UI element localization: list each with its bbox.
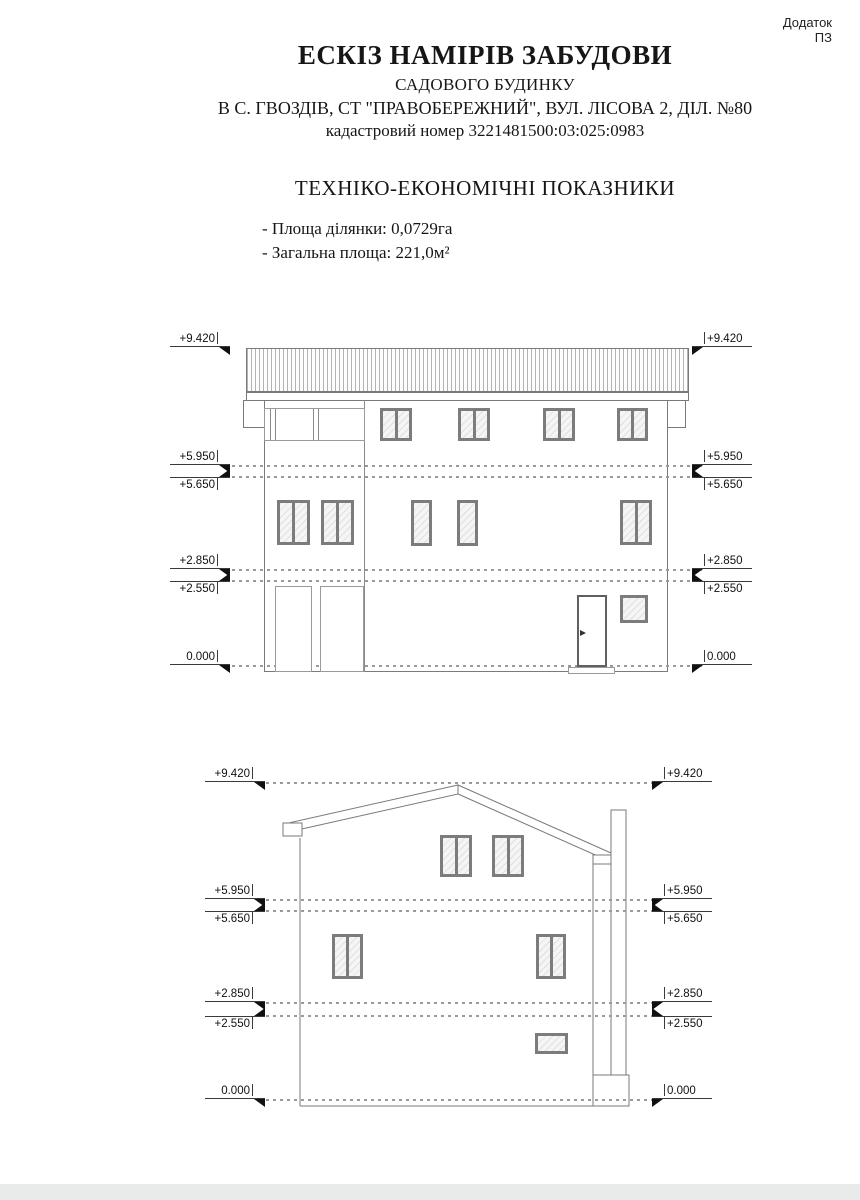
level-mark-icon — [254, 903, 265, 911]
eave-return-right — [667, 400, 686, 428]
level-value: +5.950 — [652, 884, 712, 899]
window — [457, 500, 478, 546]
level-label: +5.950 — [652, 884, 712, 899]
window — [411, 500, 432, 546]
level-line — [266, 910, 660, 912]
roof-hatched-band — [246, 348, 689, 392]
level-mark-icon — [692, 665, 703, 673]
window — [543, 408, 575, 441]
level-value: +5.650 — [170, 477, 230, 492]
level-line — [266, 1015, 660, 1017]
level-value: +2.550 — [170, 581, 230, 596]
level-label: +5.950 — [170, 450, 230, 465]
indicator-item: - Площа ділянки: 0,0729га — [262, 217, 452, 241]
window — [620, 595, 648, 623]
level-line — [232, 465, 702, 467]
level-label: +9.420 — [692, 332, 752, 347]
ribbon-mullion — [313, 409, 314, 440]
level-label: +9.420 — [652, 767, 712, 782]
level-mark-icon — [219, 665, 230, 673]
level-value: +5.950 — [205, 884, 265, 899]
level-mark-icon — [652, 782, 663, 790]
level-value: +9.420 — [205, 767, 265, 782]
page-edge — [0, 1184, 860, 1200]
window — [321, 500, 354, 545]
window — [535, 1033, 568, 1054]
level-mark-icon — [652, 1008, 663, 1016]
page-title: ЕСКІЗ НАМІРІВ ЗАБУДОВИ — [110, 40, 860, 71]
level-mark-icon — [692, 469, 703, 477]
level-label: +5.950 — [692, 450, 752, 465]
cadastral-number: кадастровий номер 3221481500:03:025:0983 — [110, 121, 860, 141]
level-value: 0.000 — [205, 1084, 265, 1099]
level-value: +5.650 — [652, 911, 712, 926]
level-mark-icon — [219, 347, 230, 355]
level-label: 0.000 — [170, 650, 230, 665]
level-value: +9.420 — [170, 332, 230, 347]
level-line — [266, 1002, 660, 1004]
level-value: +2.850 — [692, 554, 752, 569]
ground-opening — [320, 586, 364, 672]
window — [277, 500, 310, 545]
level-label: +5.650 — [652, 911, 712, 926]
level-mark-icon — [254, 1099, 265, 1107]
level-label: +2.550 — [205, 1016, 265, 1031]
level-label: +5.650 — [692, 477, 752, 492]
level-value: +2.550 — [205, 1016, 265, 1031]
level-label: +5.650 — [170, 477, 230, 492]
level-label: +2.550 — [170, 581, 230, 596]
indicators-list: - Площа ділянки: 0,0729га - Загальна пло… — [262, 217, 452, 265]
eave-return-left — [243, 400, 265, 428]
door-threshold — [568, 667, 615, 674]
level-mark-icon — [652, 903, 663, 911]
window — [440, 835, 472, 877]
level-label: +9.420 — [170, 332, 230, 347]
level-label: 0.000 — [205, 1084, 265, 1099]
page-subtitle: САДОВОГО БУДИНКУ — [110, 75, 860, 95]
level-mark-icon — [692, 573, 703, 581]
level-line — [232, 569, 702, 571]
level-mark-icon — [219, 573, 230, 581]
level-value: 0.000 — [652, 1084, 712, 1099]
window — [536, 934, 566, 979]
level-value: 0.000 — [170, 650, 230, 665]
ribbon-window — [264, 408, 365, 441]
level-label: +5.650 — [205, 911, 265, 926]
level-label: +2.850 — [652, 987, 712, 1002]
ribbon-mullion — [275, 409, 276, 440]
indicator-item: - Загальна площа: 221,0м² — [262, 241, 452, 265]
window — [380, 408, 412, 441]
level-mark-icon — [692, 347, 703, 355]
level-value: +2.550 — [652, 1016, 712, 1031]
window — [458, 408, 490, 441]
site-address: В С. ГВОЗДІВ, СТ "ПРАВОБЕРЕЖНИЙ", ВУЛ. Л… — [110, 98, 860, 119]
window — [620, 500, 652, 545]
level-value: +5.950 — [170, 450, 230, 465]
window — [617, 408, 648, 441]
level-mark-icon — [254, 782, 265, 790]
level-value: +2.850 — [205, 987, 265, 1002]
level-label: 0.000 — [652, 1084, 712, 1099]
appendix-line1: Додаток — [783, 15, 832, 30]
ground-opening — [275, 586, 312, 672]
entrance-door — [577, 595, 607, 667]
level-value: +5.650 — [205, 911, 265, 926]
level-label: +5.950 — [205, 884, 265, 899]
level-label: +9.420 — [205, 767, 265, 782]
document-page: Додаток ПЗ ЕСКІЗ НАМІРІВ ЗАБУДОВИ САДОВО… — [0, 0, 860, 1200]
level-line — [232, 476, 702, 478]
level-mark-icon — [652, 1099, 663, 1107]
level-line — [266, 899, 660, 901]
level-line — [232, 580, 702, 582]
level-label: +2.850 — [205, 987, 265, 1002]
level-mark-icon — [254, 1008, 265, 1016]
level-mark-icon — [219, 469, 230, 477]
level-value: +9.420 — [692, 332, 752, 347]
level-label: +2.850 — [170, 554, 230, 569]
level-line — [266, 1099, 660, 1101]
ribbon-mullion — [270, 409, 271, 440]
side-facade-outline — [260, 775, 700, 1115]
level-value: 0.000 — [692, 650, 752, 665]
level-value: +2.850 — [170, 554, 230, 569]
level-label: +2.850 — [692, 554, 752, 569]
level-label: 0.000 — [692, 650, 752, 665]
ribbon-mullion — [318, 409, 319, 440]
level-value: +5.650 — [692, 477, 752, 492]
window — [492, 835, 524, 877]
level-value: +5.950 — [692, 450, 752, 465]
indicators-heading: ТЕХНІКО-ЕКОНОМІЧНІ ПОКАЗНИКИ — [110, 176, 860, 201]
level-label: +2.550 — [692, 581, 752, 596]
level-value: +9.420 — [652, 767, 712, 782]
level-label: +2.550 — [652, 1016, 712, 1031]
level-line — [266, 782, 660, 784]
window — [332, 934, 363, 979]
level-value: +2.850 — [652, 987, 712, 1002]
level-value: +2.550 — [692, 581, 752, 596]
